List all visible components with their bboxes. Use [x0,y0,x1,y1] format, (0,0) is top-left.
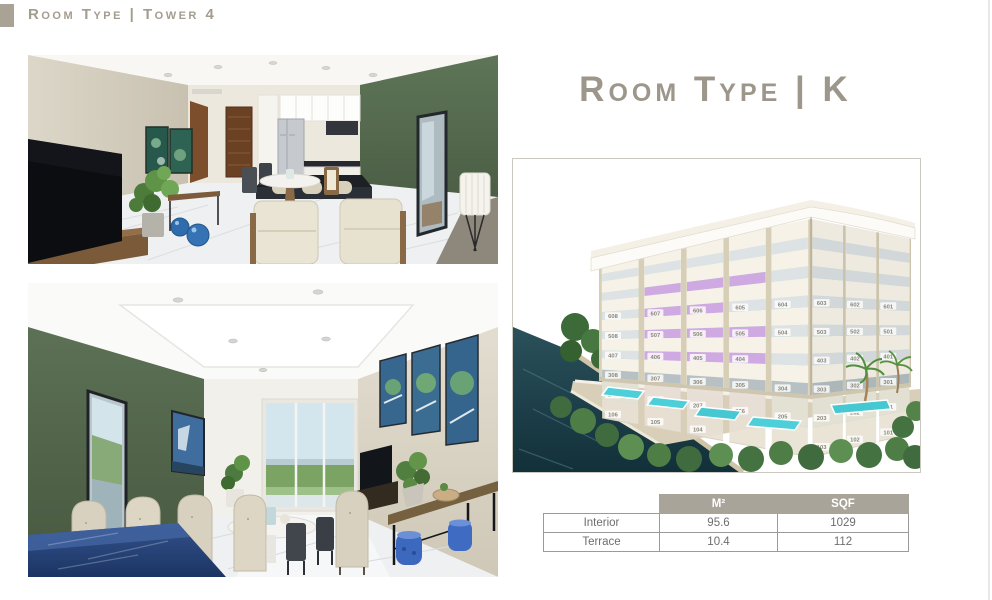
unit-label: 303 [817,387,827,393]
table-header-empty [544,495,660,514]
pilaster [599,262,602,377]
unit-label: 405 [693,356,703,362]
pilaster [910,239,911,383]
unit-label: 607 [651,311,661,317]
unit-label: 501 [883,330,893,336]
unit-label: 101 [883,430,893,436]
unit-label: 307 [651,377,661,383]
table-row-terrace: Terrace 10.4 112 [544,533,909,552]
microwave [326,121,358,135]
unit-label: 505 [735,331,745,337]
unit-label: 504 [778,330,788,336]
interior-render-living-dining [28,283,498,577]
unit-label: 602 [850,303,860,309]
pilaster [876,232,879,387]
pilaster [639,254,645,381]
row-label: Interior [544,514,660,533]
unit-label: 601 [883,304,893,310]
unit-label: 603 [817,301,827,307]
unit-label: 507 [651,333,661,339]
mirror [418,112,446,235]
unit-label: 102 [850,438,860,444]
unit-label: 305 [735,383,745,389]
pilaster [723,236,729,388]
unit-window [772,353,808,365]
unit-label: 105 [651,420,661,426]
header-accent-square [0,4,14,27]
pilaster [681,245,687,385]
unit-label: 503 [817,330,827,336]
unit-label: 604 [778,303,788,309]
unit-label: 404 [735,357,745,363]
interior-render-living-kitchen [28,55,498,264]
row-sqf-value: 1029 [778,514,909,533]
row-m2-value: 95.6 [660,514,778,533]
unit-label: 301 [883,380,893,386]
unit-label: 203 [817,416,827,422]
row-sqf-value: 112 [778,533,909,552]
table-header-row: M² SQF [544,495,909,514]
unit-label: 502 [850,330,860,336]
unit-label: 605 [735,305,745,311]
table-header-m2: M² [660,495,778,514]
unit-label: 506 [693,332,703,338]
room-type-title: Room Type | K [512,70,919,110]
unit-label: 508 [608,334,618,340]
unit-label: 106 [608,413,618,419]
row-m2-value: 10.4 [660,533,778,552]
unit-label: 403 [817,359,827,365]
row-label: Terrace [544,533,660,552]
area-table: M² SQF Interior 95.6 1029 Terrace 10.4 1… [543,494,909,552]
blue-canvas-art [172,411,204,475]
unit-label: 402 [850,357,860,363]
unit-label: 308 [608,373,618,379]
page-header-title: Room Type | Tower 4 [28,6,216,23]
unit-label: 306 [693,380,703,386]
unit-label: 302 [850,384,860,390]
fridge [278,119,304,175]
unit-label: 608 [608,314,618,320]
unit-label: 401 [883,355,893,361]
building-render: 6086076066056045085075065055044074064054… [512,158,921,473]
unit-label: 407 [608,354,618,360]
carved-door [226,107,252,177]
unit-label: 406 [651,355,661,361]
unit-label: 606 [693,308,703,314]
right-edge-divider [988,0,990,600]
pilaster [843,225,846,391]
unit-label: 104 [693,427,703,433]
pilaster [766,227,772,391]
table-row-interior: Interior 95.6 1029 [544,514,909,533]
table-header-sqf: SQF [778,495,909,514]
unit-label: 304 [778,386,788,392]
